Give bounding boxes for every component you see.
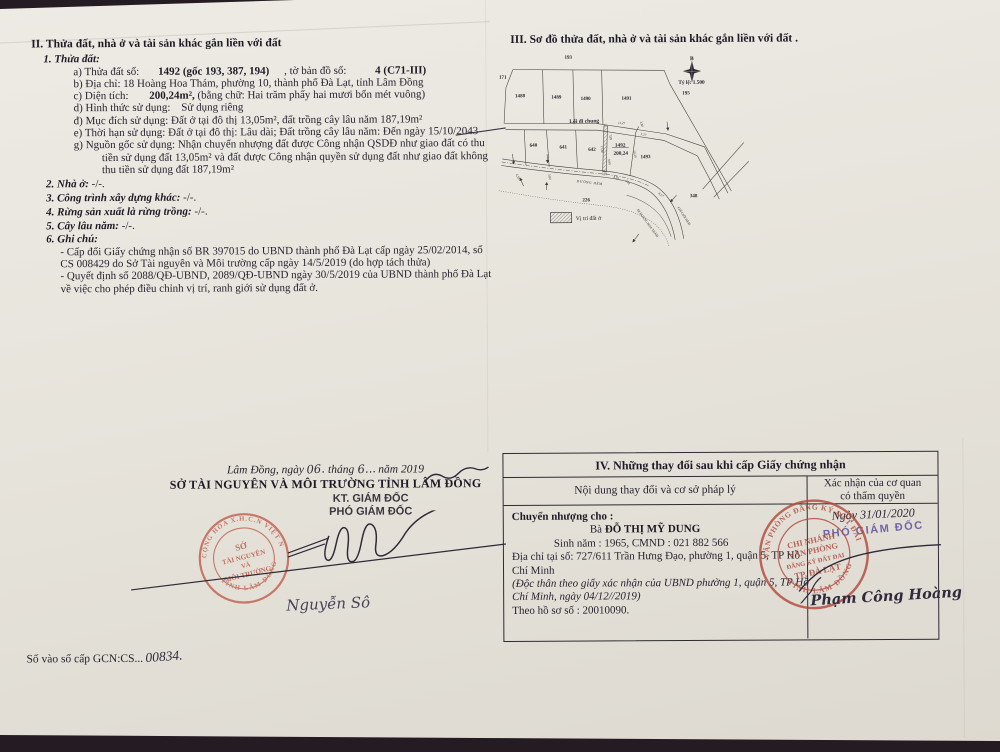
dim-3-80-left: 3,80 <box>546 174 552 181</box>
item3-value: -/-. <box>183 192 196 204</box>
label-chi-gioi-hem: CHỈ GIỚI HẺM <box>676 205 692 226</box>
parcel-1492: 1492 <box>615 143 626 149</box>
field-a-value2: 4 (C71-III) <box>375 64 426 76</box>
field-c-label: c) Diện tích: <box>74 90 129 102</box>
item5-label: 5. Cây lâu năm: <box>46 220 119 232</box>
field-a-label: a) Thửa đất số: <box>73 65 139 77</box>
label-loi-di-chung: Lối đi chung <box>569 117 599 125</box>
parcel-1490: 1490 <box>581 96 592 102</box>
signature-flourish <box>288 538 329 557</box>
parcel-1488: 1488 <box>515 93 526 99</box>
parcel-1492-area: 200,24 <box>613 151 628 157</box>
map-scale: Tỷ lệ: 1.500 <box>678 80 705 86</box>
parcel-1491: 1491 <box>621 96 632 102</box>
cadastral-map: 193 171 195 1488 1489 1490 1491 640 641 … <box>493 45 1000 448</box>
map-boundaries <box>498 68 749 247</box>
compass-rose: B <box>683 56 701 82</box>
field-use-origin: g) Nguồn gốc sử dụng: Nhận chuyển nhượng… <box>32 137 497 176</box>
dim-17-80: 17,80 <box>599 145 605 153</box>
note-1: - Cấp đổi Giấy chứng nhận số BR 397015 d… <box>32 244 497 271</box>
date-suffix: năm 2019 <box>378 463 424 475</box>
gcn-label: Số vào sổ cấp GCN:CS... <box>26 653 143 666</box>
label-di-hoang-hoa-tham: ĐI HOÀNG HOA THÁM <box>636 208 660 239</box>
parcel-642: 642 <box>588 147 596 153</box>
document-paper: II. Thửa đất, nhà ở và tài sản khác gắn … <box>0 0 1000 749</box>
section-iv-title: IV. Những thay đổi sau khi cấp Giấy chứn… <box>503 452 937 478</box>
parcel-641: 641 <box>559 145 567 151</box>
dim-4-56: 4,56 <box>613 175 620 182</box>
dim-2-82: 2,82 <box>624 178 632 186</box>
section-iii-title: III. Sơ đồ thửa đất, nhà ở và tài sản kh… <box>510 31 798 46</box>
label-duong-hem: ĐƯỜNG HẺM <box>577 178 604 186</box>
date-prefix: Lâm Đồng, ngày <box>227 464 304 476</box>
parcel-1493: 1493 <box>640 154 651 160</box>
date-mid: tháng <box>328 464 354 476</box>
name-prefix: Bà <box>590 524 602 536</box>
dim-20-30: 20,30 <box>631 150 638 159</box>
section-ii-title: II. Thửa đất, nhà ở và tài sản khác gắn … <box>31 36 496 51</box>
item5-value: -/-. <box>122 220 135 232</box>
parcel-640: 640 <box>530 143 538 149</box>
parcel-195: 195 <box>682 90 690 96</box>
document-content: II. Thửa đất, nhà ở và tài sản khác gắn … <box>0 0 1000 752</box>
registry-signature-curve <box>799 545 941 592</box>
field-d-value: Sử dụng riêng <box>181 102 243 114</box>
gcn-number-handwritten: 00834. <box>145 647 183 666</box>
field-e-label: e) Thời hạn sử dụng: <box>74 127 166 139</box>
dim-3-80-top: 3,80 <box>638 121 644 128</box>
signature-curve <box>325 510 493 562</box>
field-dd-value: Đất ở tại đô thị 13,05m², đất trồng cây … <box>171 113 422 126</box>
field-c-note: (bằng chữ: Hai trăm phẩy hai mươi bốn mé… <box>197 89 425 102</box>
date-day-handwritten: 06. <box>306 461 325 476</box>
parcel-226: 226 <box>582 197 590 203</box>
item-house: 2. Nhà ở: -/-. <box>32 176 497 191</box>
legend-label: Vị trí đất ở <box>576 215 602 222</box>
dim-1-37: 1,37 <box>601 172 608 178</box>
date-month-handwritten: 6... <box>357 461 376 476</box>
gcn-serial-line: Số vào sổ cấp GCN:CS... 00834. <box>26 650 183 667</box>
item2-label: 2. Nhà ở: <box>46 178 89 190</box>
item-perennial: 5. Cây lâu năm: -/-. <box>32 218 497 233</box>
parcel-193: 193 <box>564 55 572 61</box>
note-2: - Quyết định số 2088/QĐ-UBND, 2089/QĐ-UB… <box>32 268 497 295</box>
item-forest: 4. Rừng sản xuất là rừng trồng: -/-. <box>32 204 497 219</box>
col-header-left: Nội dung thay đổi và cơ sở pháp lý <box>504 476 808 505</box>
dim-11-27: 11,27 <box>618 121 626 126</box>
dim-7-89: 7,89 <box>607 134 613 141</box>
signature-strokes <box>101 510 521 607</box>
dimension-labels: 11,27 3,80 3,27 7,89 17,80 9,99 20,30 1,… <box>514 121 665 200</box>
item3-label: 3. Công trình xây dựng khác: <box>46 192 180 205</box>
field-d-label: d) Hình thức sử dụng: <box>74 102 171 115</box>
field-g-label: g) Nguồn gốc sử dụng: <box>74 139 175 152</box>
initial-squiggle <box>418 458 493 490</box>
field-c-value: 200,24m², <box>149 90 195 102</box>
section-iv-header-row: Nội dung thay đổi và cơ sở pháp lý Xác n… <box>504 476 938 506</box>
pen-underline <box>131 544 506 590</box>
parcel-348: 348 <box>690 193 698 199</box>
col-header-right-line1: Xác nhận của cơ quan <box>808 477 938 491</box>
item4-label: 4. Rừng sản xuất là rừng trồng: <box>46 205 192 218</box>
field-a-value: 1492 (gốc 193, 387, 194) <box>158 65 269 78</box>
map-legend: Vị trí đất ở <box>550 212 602 222</box>
section-ii: II. Thửa đất, nhà ở và tài sản khác gắn … <box>31 36 497 295</box>
field-b-label: b) Địa chỉ: <box>73 78 120 90</box>
item4-value: -/-. <box>194 205 207 217</box>
legend-hatch-swatch <box>550 213 571 223</box>
field-b-value: 18 Hoàng Hoa Thám, phường 10, thành phố … <box>123 76 423 90</box>
field-dd-label: đ) Mục đích sử dụng: <box>74 115 169 127</box>
parcel-171: 171 <box>499 75 507 81</box>
parcel-1489: 1489 <box>551 95 562 101</box>
dim-4-50: 4,50 <box>514 173 521 181</box>
item6-label: 6. Ghi chú: <box>46 234 98 246</box>
field-a-label2: , tờ bản đồ số: <box>284 64 346 76</box>
item-other-construction: 3. Công trình xây dựng khác: -/-. <box>32 190 497 205</box>
transferee-name: ĐỖ THỊ MỸ DUNG <box>605 523 701 535</box>
item2-value: -/-. <box>92 178 105 190</box>
